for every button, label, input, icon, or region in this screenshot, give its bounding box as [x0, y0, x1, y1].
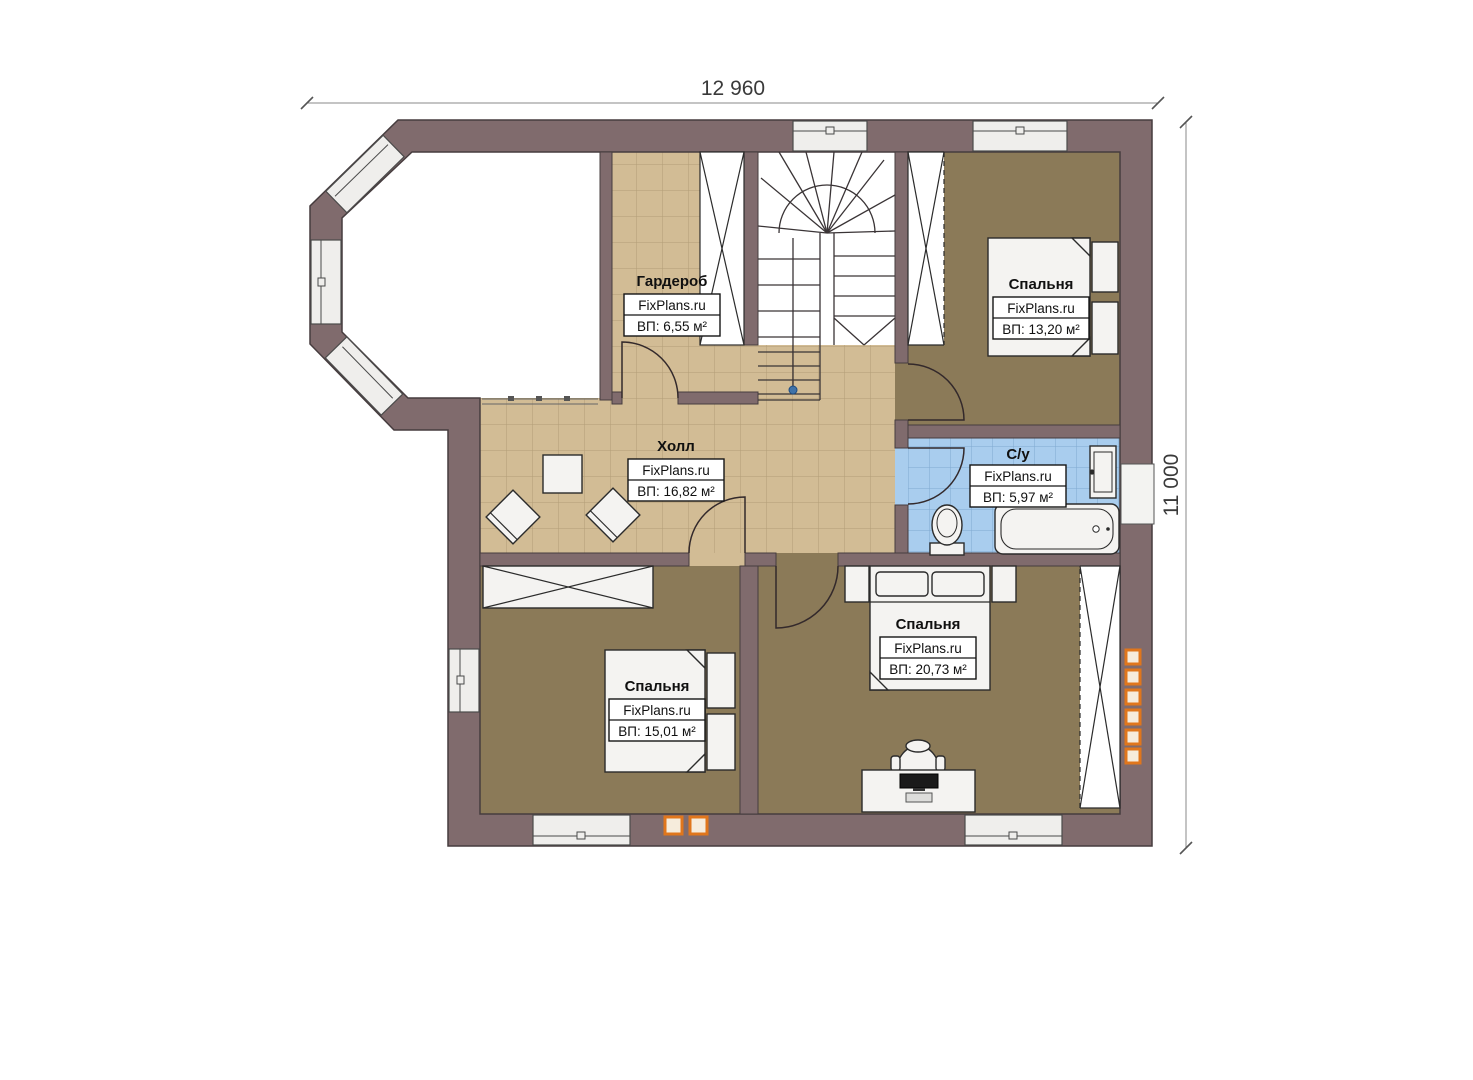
dimension-right: 11 000 — [1160, 116, 1192, 854]
nightstand — [1092, 242, 1118, 292]
window-top-bedroom — [973, 121, 1067, 151]
room-name: Спальня — [625, 678, 690, 695]
dimension-width-label: 12 960 — [701, 77, 765, 100]
window-left-bedroom — [449, 649, 479, 712]
flue — [1126, 749, 1140, 763]
room-area: ВП: 6,55 м² — [637, 319, 708, 334]
brand-label: FixPlans.ru — [623, 703, 691, 718]
flue — [690, 817, 707, 834]
room-area: ВП: 13,20 м² — [1002, 322, 1080, 337]
bathtub — [995, 504, 1119, 554]
room-area: ВП: 15,01 м² — [618, 724, 696, 739]
door-strip-bedroom-right — [776, 553, 838, 566]
window-bay-upper — [326, 135, 404, 212]
window-bottom-left — [533, 815, 630, 845]
pillow — [876, 572, 928, 596]
closet-x — [483, 566, 653, 608]
flue — [1126, 710, 1140, 724]
nightstand — [845, 566, 869, 602]
brand-label: FixPlans.ru — [1007, 301, 1075, 316]
nightstand — [992, 566, 1016, 602]
window-top-stairs — [793, 121, 867, 151]
room-name: Спальня — [1009, 276, 1074, 293]
exterior-duct-box — [1121, 464, 1154, 524]
floor-plan-canvas: Гардероб FixPlans.ru ВП: 6,55 м² Спальня… — [0, 0, 1473, 1080]
brand-label: FixPlans.ru — [642, 463, 710, 478]
room-area: ВП: 5,97 м² — [983, 490, 1054, 505]
floor-plan-page: Гардероб FixPlans.ru ВП: 6,55 м² Спальня… — [0, 0, 1473, 1080]
room-area: ВП: 20,73 м² — [889, 662, 967, 677]
flue — [1126, 690, 1140, 704]
flue — [1126, 730, 1140, 744]
monitor — [900, 774, 938, 788]
room-name: С/у — [1006, 446, 1030, 463]
window-bay-left — [311, 240, 341, 324]
toilet — [930, 505, 964, 555]
flue — [1126, 650, 1140, 664]
keyboard — [906, 793, 932, 802]
door-strip-bedroom-top — [895, 363, 908, 420]
closet-tall-x — [1080, 566, 1120, 808]
monitor-stand — [913, 788, 925, 791]
door-strip-bathroom — [895, 448, 908, 505]
nightstand — [707, 714, 735, 770]
pillow — [932, 572, 984, 596]
stair-direction-marker — [789, 386, 797, 394]
dimension-height-label: 11 000 — [1160, 454, 1183, 517]
flue — [1126, 670, 1140, 684]
room-name: Спальня — [896, 616, 961, 633]
window-bottom-right — [965, 815, 1062, 845]
nightstand — [707, 653, 735, 708]
flue — [665, 817, 682, 834]
nightstand — [1092, 302, 1118, 354]
dimension-top: 12 960 — [301, 77, 1164, 109]
brand-label: FixPlans.ru — [984, 469, 1052, 484]
door-strip-bedroom-left — [689, 553, 745, 566]
room-area: ВП: 16,82 м² — [637, 484, 715, 499]
room-name: Гардероб — [637, 273, 708, 290]
hall-table — [543, 455, 582, 493]
window-bay-lower — [325, 337, 402, 415]
room-name: Холл — [657, 438, 695, 455]
washbasin — [1089, 446, 1116, 498]
brand-label: FixPlans.ru — [638, 298, 706, 313]
brand-label: FixPlans.ru — [894, 641, 962, 656]
shaft-right-of-stairs — [908, 152, 944, 345]
room-label-wardrobe: Гардероб FixPlans.ru ВП: 6,55 м² — [624, 273, 720, 336]
